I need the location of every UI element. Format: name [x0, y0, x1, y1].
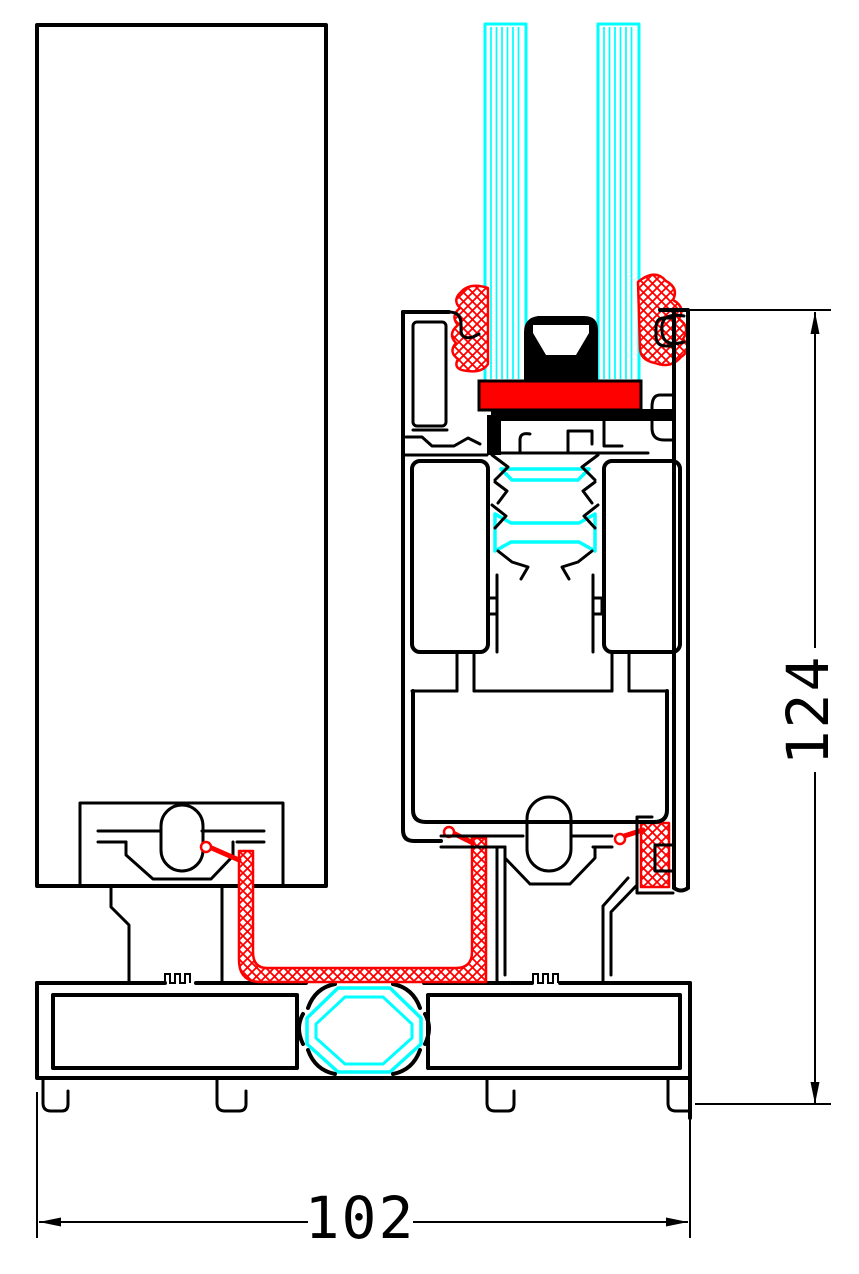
- drain-funnel: [497, 847, 636, 983]
- gasket-bulb: [201, 842, 211, 852]
- panel-outline: [37, 25, 326, 886]
- profile-section-drawing: 124 102: [0, 0, 859, 1274]
- rebate-wall: [487, 415, 501, 455]
- sill-thermal-break-inner: [316, 997, 412, 1064]
- double-glazing-unit: [479, 24, 641, 410]
- sash-left-edge: [403, 312, 441, 841]
- dimension-annotations: 124 102: [37, 310, 842, 1252]
- sill-body: [37, 983, 690, 1118]
- setting-block: [479, 381, 641, 410]
- sash-bottom-chamber: [413, 691, 667, 822]
- sill-profile: [37, 983, 690, 1118]
- dimension-width-label: 102: [305, 1184, 416, 1252]
- sash-webs: [488, 575, 602, 652]
- glass-pane-right-layers: [604, 27, 632, 379]
- glazing-gasket-left: [452, 286, 488, 372]
- sill-thermal-break-outer: [307, 988, 421, 1072]
- roller-cradle-left: [126, 842, 233, 879]
- dimension-height-label: 124: [774, 655, 842, 766]
- vapour-membrane-gasket: [239, 838, 486, 982]
- sill-chamber-left: [53, 995, 297, 1068]
- sill-foot: [668, 1078, 690, 1111]
- fixed-panel-and-frame: [37, 25, 326, 983]
- roller-right: [527, 797, 571, 871]
- roller-left: [161, 805, 203, 871]
- gasket-bulb: [615, 834, 625, 844]
- sill-foot: [43, 1078, 68, 1111]
- sash-thermal-break-1: [501, 469, 589, 480]
- rebate-hooks: [501, 421, 648, 453]
- sash-legs: [457, 652, 629, 691]
- cad-drawing-canvas: 124 102: [0, 0, 859, 1274]
- sash-right-wall: [660, 310, 688, 891]
- frame-funnel-left: [111, 886, 222, 981]
- roller-cradle-right: [505, 847, 595, 884]
- sash-chamber-left: [412, 461, 488, 652]
- glass-pane-left-layers: [491, 27, 519, 379]
- glazing-bead: [413, 322, 446, 426]
- arrowhead-left: [39, 1218, 61, 1227]
- rebate-bar: [491, 409, 674, 421]
- roller-shelf-left: [98, 831, 264, 842]
- break-mark-left: [165, 974, 190, 983]
- sill-foot: [217, 1078, 246, 1111]
- sash-chamber-right: [604, 461, 680, 652]
- arrowhead-right: [666, 1218, 688, 1227]
- break-mark-right: [533, 974, 558, 983]
- arrowhead-up: [811, 312, 820, 334]
- arrowhead-down: [811, 1082, 820, 1104]
- sash-thermal-break-2: [495, 514, 595, 551]
- sill-foot: [487, 1078, 514, 1111]
- bead-clip: [403, 430, 487, 455]
- sill-chamber-right: [428, 995, 680, 1068]
